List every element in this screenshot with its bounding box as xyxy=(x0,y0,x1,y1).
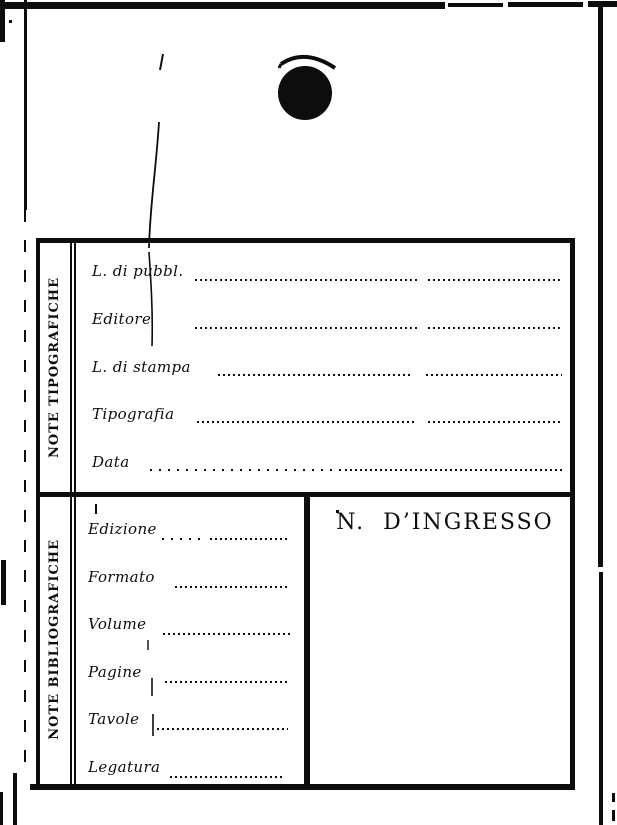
dotted-blank xyxy=(210,538,290,540)
dotted-blank xyxy=(150,469,348,471)
scan-right-edge xyxy=(612,810,615,821)
catalog-card-form: NOTE TIPOGRAFICHE NOTE BIBLIOGRAFICHE L.… xyxy=(36,238,575,790)
paper-fold-line xyxy=(24,0,27,210)
field-pagine: Pagine xyxy=(88,663,142,681)
sidebar-rule xyxy=(74,243,76,784)
field-data: Data xyxy=(92,453,130,471)
punch-hole-icon xyxy=(252,42,368,134)
dotted-blank xyxy=(345,469,562,471)
field-tavole: Tavole xyxy=(88,710,139,728)
field-luogo-stampa: L. di stampa xyxy=(92,358,191,376)
scan-top-edge xyxy=(508,2,583,7)
dotted-blank xyxy=(195,327,418,329)
scan-left-edge xyxy=(1,560,6,605)
entry-number-heading: N. D’INGRESSO xyxy=(322,510,568,535)
paper-fold-line xyxy=(24,210,26,770)
scanned-library-card-page: NOTE TIPOGRAFICHE NOTE BIBLIOGRAFICHE L.… xyxy=(0,0,617,825)
field-luogo-pubblicazione: L. di pubbl. xyxy=(92,262,184,280)
dotted-blank xyxy=(175,586,288,588)
column-divider xyxy=(304,492,310,784)
scan-speck xyxy=(9,20,12,23)
scan-top-edge xyxy=(0,2,445,9)
dotted-blank xyxy=(162,538,200,540)
section-bibliographic-sidebar: NOTE BIBLIOGRAFICHE xyxy=(40,498,69,780)
dotted-blank xyxy=(428,279,562,281)
section-typographic-sidebar: NOTE TIPOGRAFICHE xyxy=(40,247,69,489)
scan-right-edge xyxy=(612,793,615,802)
scan-left-edge xyxy=(13,773,17,825)
dotted-blank xyxy=(428,327,562,329)
dotted-blank xyxy=(428,421,562,423)
field-formato: Formato xyxy=(88,568,155,586)
dotted-blank xyxy=(218,374,412,376)
dotted-blank xyxy=(195,279,418,281)
field-volume: Volume xyxy=(88,615,146,633)
scan-right-edge xyxy=(598,7,603,567)
sidebar-rule xyxy=(70,243,72,784)
section-label-typographic: NOTE TIPOGRAFICHE xyxy=(47,277,62,458)
dotted-blank xyxy=(197,421,415,423)
scan-right-edge xyxy=(599,572,603,825)
dotted-blank xyxy=(165,681,290,683)
field-editore: Editore xyxy=(92,310,151,328)
field-edizione: Edizione xyxy=(88,520,157,538)
field-tipografia: Tipografia xyxy=(92,405,174,423)
field-legatura: Legatura xyxy=(88,758,160,776)
dotted-blank xyxy=(426,374,562,376)
dotted-blank xyxy=(170,776,284,778)
scan-left-edge xyxy=(0,0,5,42)
scan-top-edge xyxy=(448,3,503,7)
section-label-bibliographic: NOTE BIBLIOGRAFICHE xyxy=(47,539,62,740)
scan-left-edge xyxy=(0,792,3,825)
dotted-blank xyxy=(157,728,288,730)
dotted-blank xyxy=(163,633,293,635)
